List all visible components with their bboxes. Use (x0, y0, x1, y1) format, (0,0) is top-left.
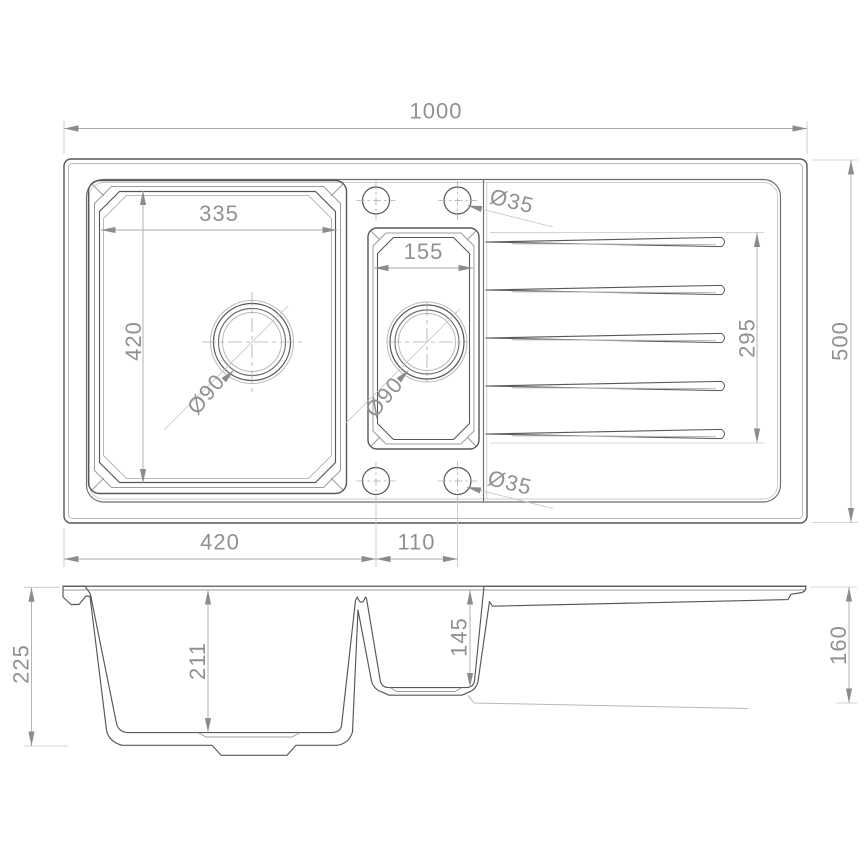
small-drain: Ø90 (345, 302, 467, 424)
end-height-label: 160 (826, 625, 851, 665)
small-bowl-depth-label: 145 (447, 617, 472, 657)
overall-width-label: 1000 (410, 99, 463, 124)
tap-hole-top-label: Ø35 (487, 184, 536, 219)
groove (486, 285, 724, 294)
dim-overall-width: 1000 (64, 99, 807, 155)
offset-small-label: 110 (397, 530, 435, 555)
groove (486, 333, 724, 342)
dim-small-bowl-depth: 145 (447, 590, 474, 688)
groove (486, 381, 724, 390)
main-bowl-drain-recess (198, 733, 300, 737)
small-bowl-width-label: 155 (404, 239, 444, 264)
sink-technical-drawing: Ø90 Ø90 (0, 0, 868, 868)
main-bowl-length-label: 420 (121, 321, 146, 361)
dim-main-bowl-width: 335 (101, 201, 337, 233)
dim-overall-depth: 500 (812, 160, 858, 523)
plan-view: Ø90 Ø90 (64, 99, 858, 568)
dim-end-height: 160 (810, 587, 857, 703)
drainer-grooves (486, 237, 724, 438)
dim-tap-hole-top: Ø35 (467, 184, 553, 227)
offset-main-label: 420 (200, 530, 240, 555)
dim-main-bowl-length: 420 (121, 191, 146, 484)
groove (486, 237, 724, 246)
drainer-length-label: 295 (735, 318, 760, 358)
small-bowl-drain-recess (390, 688, 462, 692)
dim-overall-height: 225 (9, 587, 69, 746)
dim-drainer-length: 295 (490, 233, 764, 444)
main-drain: Ø90 (164, 292, 302, 430)
main-bowl-width-label: 335 (199, 201, 239, 226)
main-drain-leader (164, 306, 288, 430)
section-view: 225 211 145 160 (9, 586, 858, 755)
overall-height-label: 225 (9, 644, 34, 684)
hidden-bottom-edge (468, 695, 748, 708)
dim-bottom-offsets: 420 110 (64, 496, 458, 567)
section-shell (63, 586, 806, 755)
technical-drawing-page: Ø90 Ø90 (0, 0, 868, 868)
tap-hole-bottom-label: Ø35 (485, 465, 534, 500)
main-drain-label: Ø90 (182, 369, 230, 419)
groove (486, 429, 724, 438)
dim-main-bowl-depth: 211 (185, 590, 211, 733)
overall-depth-label: 500 (828, 321, 853, 361)
dim-small-bowl-width: 155 (374, 239, 473, 271)
main-bowl-depth-label: 211 (185, 642, 210, 680)
